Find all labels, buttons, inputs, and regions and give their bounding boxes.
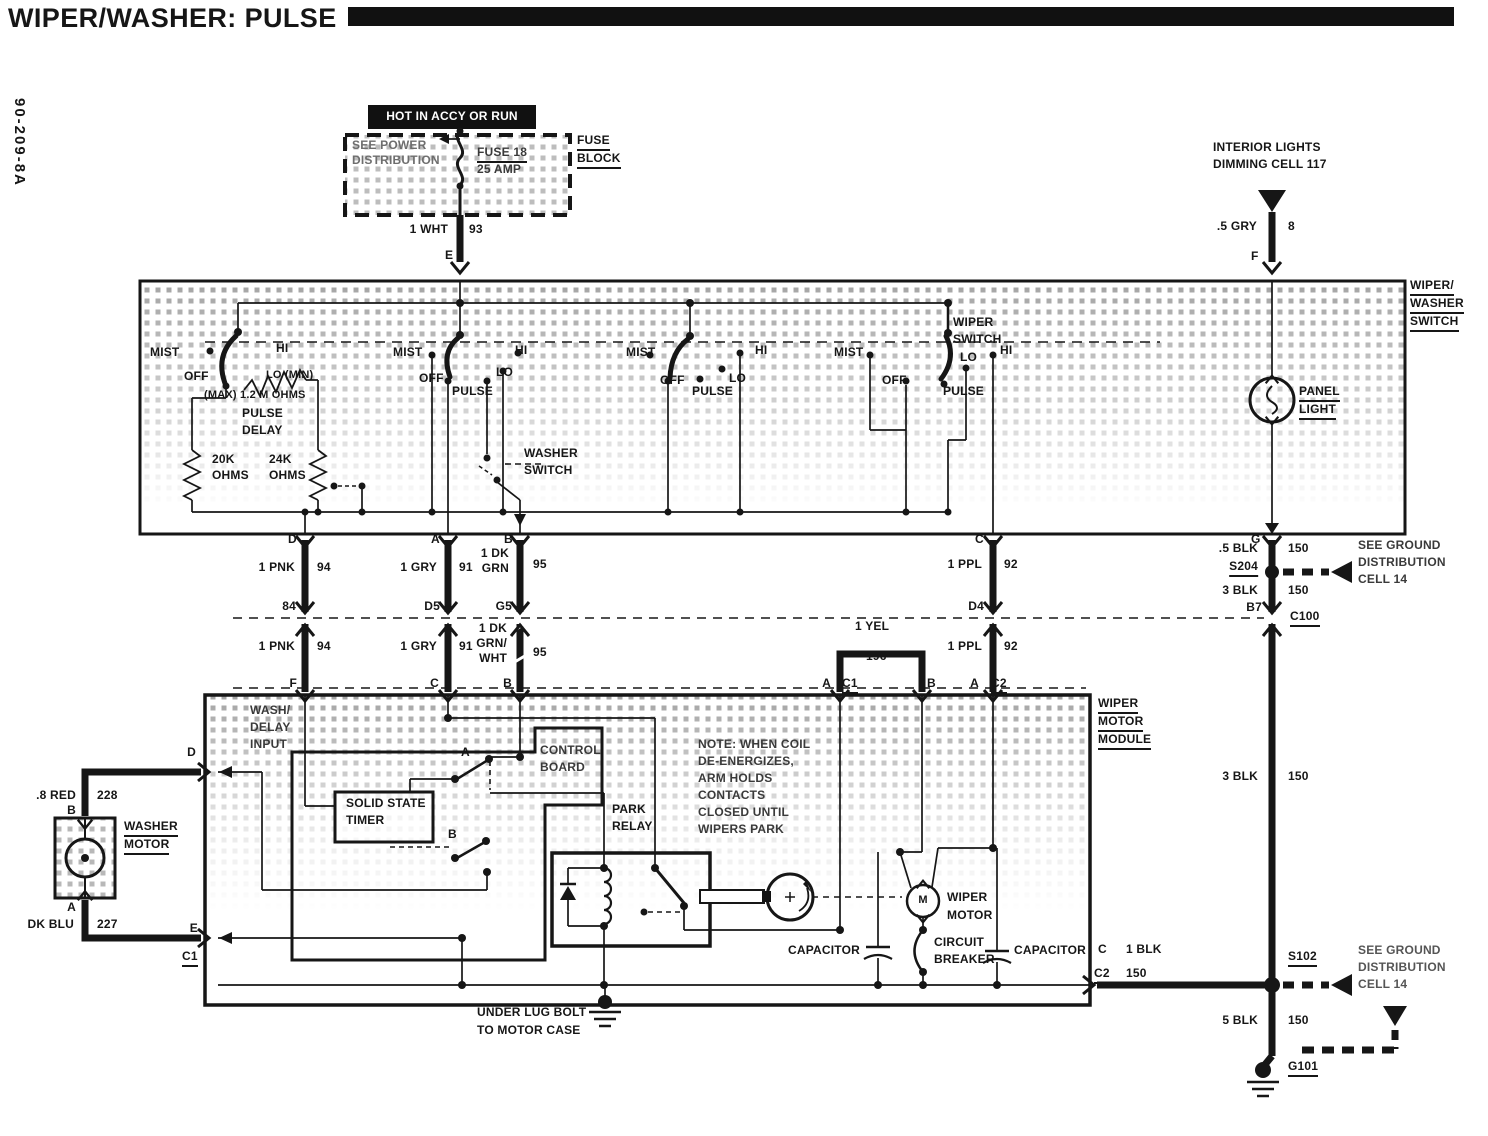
board-switch-b: B (448, 828, 457, 842)
ckt-93: 93 (469, 223, 483, 237)
wire-1wht: 1 WHT (410, 223, 448, 237)
pin-f: F (1251, 250, 1259, 264)
washer-switch-label1: WASHER (524, 447, 578, 461)
ckt-92-bot: 92 (1004, 640, 1018, 654)
ckt-91-bot: 91 (459, 640, 473, 654)
sw4-off: OFF (882, 374, 907, 388)
interior-lights-line1: INTERIOR LIGHTS (1213, 141, 1321, 155)
res-24k: 24K (269, 453, 292, 467)
board-switch-a: A (461, 746, 470, 760)
sw1-hi: HI (276, 342, 288, 356)
see-ground-bot2: DISTRIBUTION (1358, 961, 1446, 975)
circuit-breaker-label1: CIRCUIT (934, 936, 984, 950)
see-power-line1: SEE POWER (352, 139, 426, 153)
ckt-150-c: 150 (1288, 770, 1309, 784)
sw1-delay: DELAY (242, 424, 283, 438)
page-title: WIPER/WASHER: PULSE (8, 3, 337, 34)
wire-3blk-a: 3 BLK (1222, 584, 1258, 598)
sw3-mist: MIST (626, 346, 655, 360)
see-ground-bot3: CELL 14 (1358, 978, 1407, 992)
wire-pnk-top: 1 PNK (259, 561, 295, 575)
motor-m-glyph: M (918, 894, 927, 907)
wire-dkgrn-bot2: GRN/ (476, 637, 507, 651)
capacitor-label-right: CAPACITOR (1014, 944, 1086, 958)
circuit-breaker-label2: BREAKER (934, 953, 995, 967)
switch-title3: SWITCH (1410, 315, 1459, 332)
fuse-block-label1: FUSE (577, 134, 610, 151)
pin-d5: D5 (424, 600, 440, 614)
splice-s102: S102 (1288, 950, 1317, 967)
note-line6: WIPERS PARK (698, 823, 784, 837)
washer-switch-label2: SWITCH (524, 464, 573, 478)
sw3-pulse: PULSE (692, 385, 733, 399)
sw4-hi: HI (1000, 344, 1012, 358)
note-line3: ARM HOLDS (698, 772, 772, 786)
note-line5: CLOSED UNTIL (698, 806, 789, 820)
wash-delay-input1: WASH/ (250, 704, 290, 718)
wiper-switch-label1: WIPER (953, 316, 993, 330)
ground-note1: UNDER LUG BOLT (477, 1006, 586, 1020)
park-relay-label2: RELAY (612, 820, 653, 834)
ckt-95-top: 95 (533, 558, 547, 572)
ckt-94-top: 94 (317, 561, 331, 575)
wiper-switch-label2: SWITCH (953, 333, 1002, 347)
wire-3blk-b: 3 BLK (1222, 770, 1258, 784)
sw2-off: OFF (419, 372, 444, 386)
ckt-227: 227 (97, 918, 118, 932)
sw1-mist: MIST (150, 346, 179, 360)
see-power-line2: DISTRIBUTION (352, 154, 440, 168)
note-line2: DE-ENERGIZES, (698, 755, 794, 769)
control-board-label2: BOARD (540, 761, 585, 775)
module-pin-e: E (190, 922, 198, 936)
see-ground-top3: CELL 14 (1358, 573, 1407, 587)
sw2-hi: HI (515, 344, 527, 358)
fuse-name: FUSE 18 (477, 146, 527, 163)
conn-c2: C2 (991, 677, 1007, 694)
wash-delay-input2: DELAY (250, 721, 291, 735)
sw2-mist: MIST (393, 346, 422, 360)
ckt-150-a: 150 (1288, 542, 1309, 556)
wire-dkgrn-bot3: WHT (479, 652, 507, 666)
see-ground-bot1: SEE GROUND (1358, 944, 1441, 958)
sw3-lo: LO (729, 372, 746, 386)
wire-dkgrn-top2: GRN (482, 562, 509, 576)
sw1-max-ohms: (MAX) 1.2 M OHMS (204, 389, 306, 402)
wire-dkgrn-bot1: 1 DK (479, 622, 507, 636)
pin-b7: B7 (1246, 601, 1262, 615)
pin-c: C (975, 533, 984, 547)
module-title1: WIPER (1098, 697, 1138, 714)
sw4-lo: LO (960, 351, 977, 365)
ckt-196: 196 (866, 650, 887, 664)
wiring-diagram-page: WIPER/WASHER: PULSE 90-209-8A HOT IN ACC… (0, 0, 1488, 1136)
control-board-label1: CONTROL (540, 744, 601, 758)
pin-b: B (504, 533, 513, 547)
wire-8red: .8 RED (36, 789, 76, 803)
pin-d: D (288, 533, 297, 547)
ground-note2: TO MOTOR CASE (477, 1024, 581, 1038)
sw2-lo: LO (496, 366, 513, 380)
washer-pin-b: B (67, 804, 76, 818)
ckt-94-bot: 94 (317, 640, 331, 654)
ckt-150-d: 150 (1126, 967, 1147, 981)
hot-in-accy-label: HOT IN ACCY OR RUN (386, 110, 518, 124)
module-title3: MODULE (1098, 733, 1151, 750)
panel-light-label2: LIGHT (1299, 403, 1336, 420)
sw1-off: OFF (184, 370, 209, 384)
ckt-150-b: 150 (1288, 584, 1309, 598)
pin-b-c2: B (927, 677, 936, 691)
pin-d4: D4 (968, 600, 984, 614)
capacitor-label-left: CAPACITOR (788, 944, 860, 958)
note-line1: NOTE: WHEN COIL (698, 738, 810, 752)
wire-gry-top: 1 GRY (400, 561, 437, 575)
washer-pin-a: A (67, 901, 76, 915)
wire-5blk-b: 5 BLK (1222, 1014, 1258, 1028)
sw3-hi: HI (755, 344, 767, 358)
res-20k: 20K (212, 453, 235, 467)
pin-g5: G5 (496, 600, 512, 614)
park-relay-label1: PARK (612, 803, 646, 817)
sw4-pulse: PULSE (943, 385, 984, 399)
washer-motor-label1: WASHER (124, 820, 178, 837)
pin-e: E (445, 249, 453, 263)
pin-b-module: B (503, 677, 512, 691)
wire-ppl-bot: 1 PPL (948, 640, 982, 654)
wash-delay-input3: INPUT (250, 738, 287, 752)
wire-yel: 1 YEL (855, 620, 889, 634)
pin-a: A (431, 533, 440, 547)
wire-gry-bot: 1 GRY (400, 640, 437, 654)
panel-light-label1: PANEL (1299, 385, 1340, 402)
sw4-mist: MIST (834, 346, 863, 360)
note-line4: CONTACTS (698, 789, 765, 803)
see-ground-top1: SEE GROUND (1358, 539, 1441, 553)
wire-pnk-bot: 1 PNK (259, 640, 295, 654)
washer-motor-label2: MOTOR (124, 838, 169, 855)
wire-dkblu: DK BLU (27, 918, 74, 932)
ckt-91-top: 91 (459, 561, 473, 575)
switch-title1: WIPER/ (1410, 279, 1454, 296)
module-title2: MOTOR (1098, 715, 1143, 732)
ckt-228: 228 (97, 789, 118, 803)
fuse-block-label2: BLOCK (577, 152, 621, 169)
module-pin-d: D (187, 746, 196, 760)
sw3-off: OFF (660, 374, 685, 388)
wire-dkgrn-top1: 1 DK (481, 547, 509, 561)
pin-c-module: C (430, 677, 439, 691)
res-20k-ohms: OHMS (212, 469, 249, 483)
pin-f-module: F (289, 677, 297, 691)
interior-lights-line2: DIMMING CELL 117 (1213, 158, 1327, 172)
ckt-8: 8 (1288, 220, 1295, 234)
wiper-motor-label2: MOTOR (947, 909, 992, 923)
res-24k-ohms: OHMS (269, 469, 306, 483)
see-ground-top2: DISTRIBUTION (1358, 556, 1446, 570)
module-conn-c1: C1 (182, 950, 198, 967)
ckt-150-e: 150 (1288, 1014, 1309, 1028)
wire-5gry: .5 GRY (1217, 220, 1257, 234)
pin-a-c2: A (970, 677, 979, 691)
pin-c-c2: C (1098, 943, 1107, 957)
wiper-motor-label1: WIPER (947, 891, 987, 905)
ckt-95-bot: 95 (533, 646, 547, 660)
sw1-pulse: PULSE (242, 407, 283, 421)
sw1-lo-min: LO (MIN) (266, 369, 313, 382)
pin-84: 84 (282, 600, 296, 614)
timer-label2: TIMER (346, 814, 384, 828)
wire-ppl-top: 1 PPL (948, 558, 982, 572)
pin-a-c1: A (822, 677, 831, 691)
wire-5blk: .5 BLK (1219, 542, 1258, 556)
sw2-pulse: PULSE (452, 385, 493, 399)
halftone-fills (55, 135, 1405, 1005)
ground-g101: G101 (1288, 1060, 1318, 1077)
wire-1blk: 1 BLK (1126, 943, 1162, 957)
conn-c100: C100 (1290, 610, 1320, 627)
conn-c1: C1 (842, 677, 858, 694)
fuse-rating: 25 AMP (477, 163, 521, 177)
switch-title2: WASHER (1410, 297, 1464, 314)
ckt-92-top: 92 (1004, 558, 1018, 572)
doc-code: 90-209-8A (11, 98, 28, 187)
splice-s204: S204 (1229, 560, 1258, 577)
timer-label1: SOLID STATE (346, 797, 426, 811)
conn-c2-bottom: C2 (1094, 967, 1110, 984)
